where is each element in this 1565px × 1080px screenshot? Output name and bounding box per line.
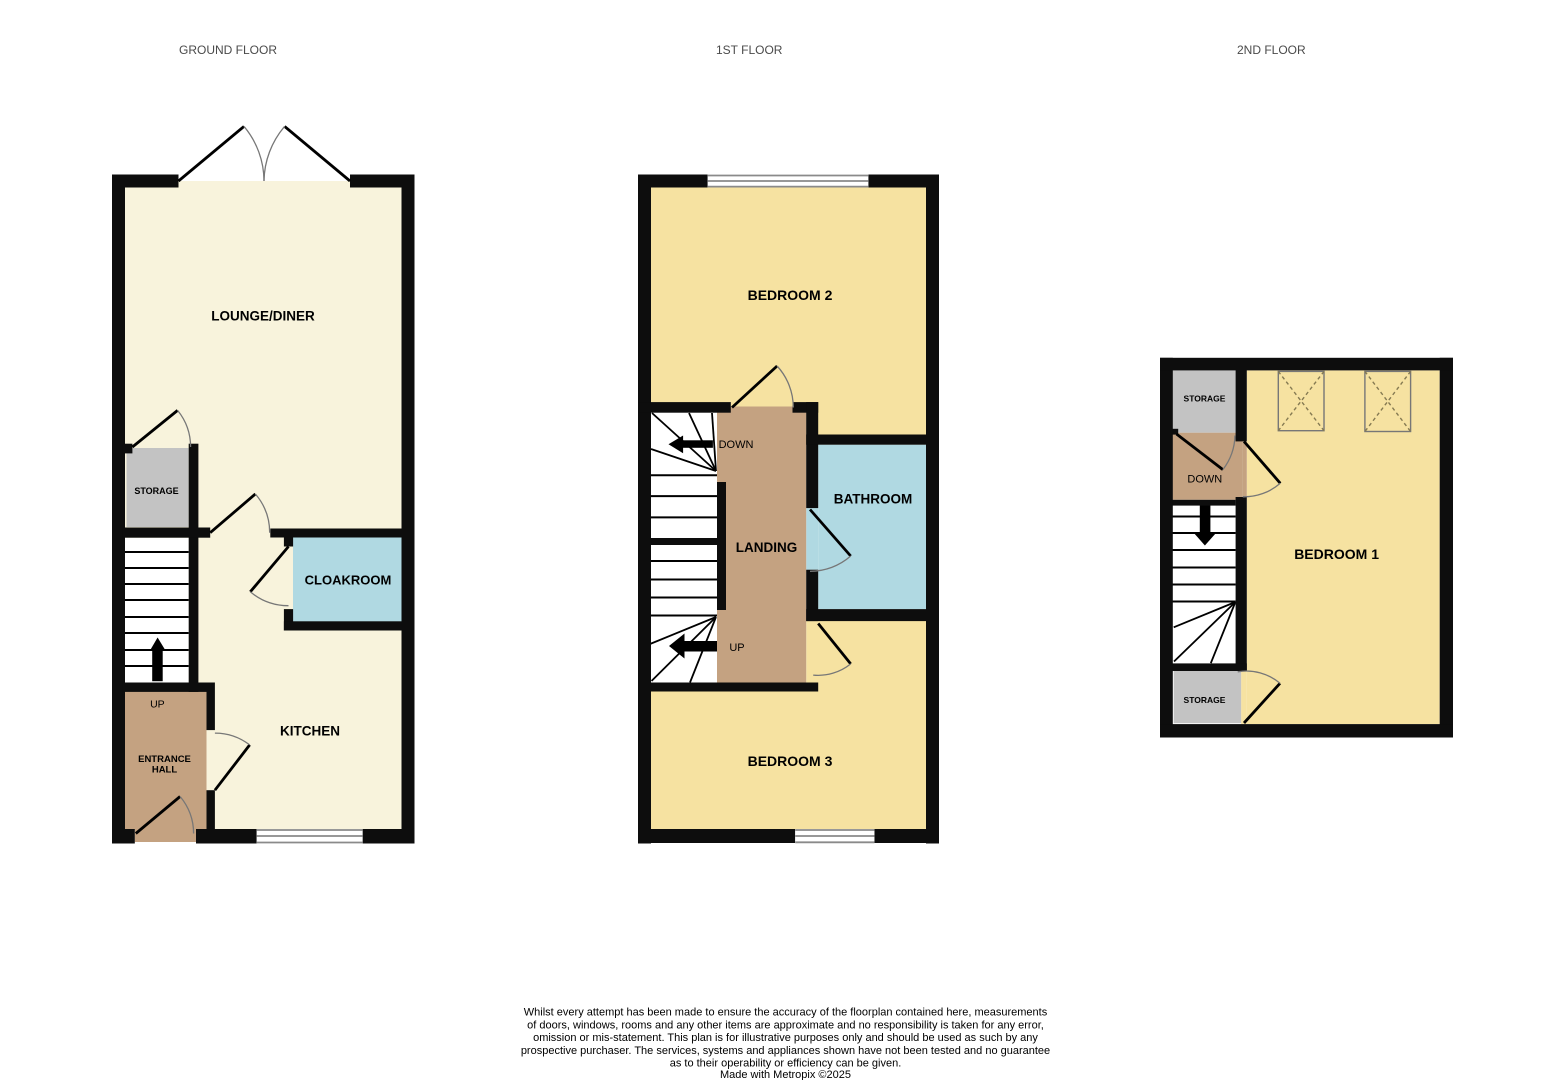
svg-text:Whilst every attempt has been: Whilst every attempt has been made to en… xyxy=(524,1007,1048,1019)
svg-text:of doors, windows, rooms and a: of doors, windows, rooms and any other i… xyxy=(527,1019,1044,1031)
svg-text:BEDROOM 1: BEDROOM 1 xyxy=(1294,546,1379,562)
svg-text:2ND FLOOR: 2ND FLOOR xyxy=(1237,43,1306,57)
svg-text:KITCHEN: KITCHEN xyxy=(280,724,340,739)
svg-text:BATHROOM: BATHROOM xyxy=(834,492,913,507)
svg-text:LANDING: LANDING xyxy=(736,540,798,555)
svg-text:UP: UP xyxy=(150,699,165,711)
svg-text:BEDROOM 2: BEDROOM 2 xyxy=(748,287,833,303)
svg-text:STORAGE: STORAGE xyxy=(1184,695,1226,705)
svg-text:UP: UP xyxy=(729,642,744,654)
svg-text:GROUND FLOOR: GROUND FLOOR xyxy=(179,43,277,57)
svg-text:DOWN: DOWN xyxy=(1187,474,1222,486)
svg-text:CLOAKROOM: CLOAKROOM xyxy=(305,573,392,588)
svg-text:DOWN: DOWN xyxy=(719,439,754,451)
svg-text:STORAGE: STORAGE xyxy=(1184,394,1226,404)
svg-text:omission or mis-statement. Thi: omission or mis-statement. This plan is … xyxy=(533,1032,1038,1044)
svg-text:LOUNGE/DINER: LOUNGE/DINER xyxy=(211,309,315,324)
svg-text:prospective purchaser. The ser: prospective purchaser. The services, sys… xyxy=(521,1045,1050,1057)
svg-text:ENTRANCE: ENTRANCE xyxy=(138,754,191,765)
svg-text:1ST FLOOR: 1ST FLOOR xyxy=(716,43,783,57)
svg-text:BEDROOM 3: BEDROOM 3 xyxy=(748,753,833,769)
svg-text:as to their operability or eff: as to their operability or efficiency ca… xyxy=(670,1058,902,1070)
svg-text:Made with Metropix ©2025: Made with Metropix ©2025 xyxy=(720,1069,851,1080)
svg-text:HALL: HALL xyxy=(152,765,178,776)
svg-text:STORAGE: STORAGE xyxy=(134,486,178,496)
